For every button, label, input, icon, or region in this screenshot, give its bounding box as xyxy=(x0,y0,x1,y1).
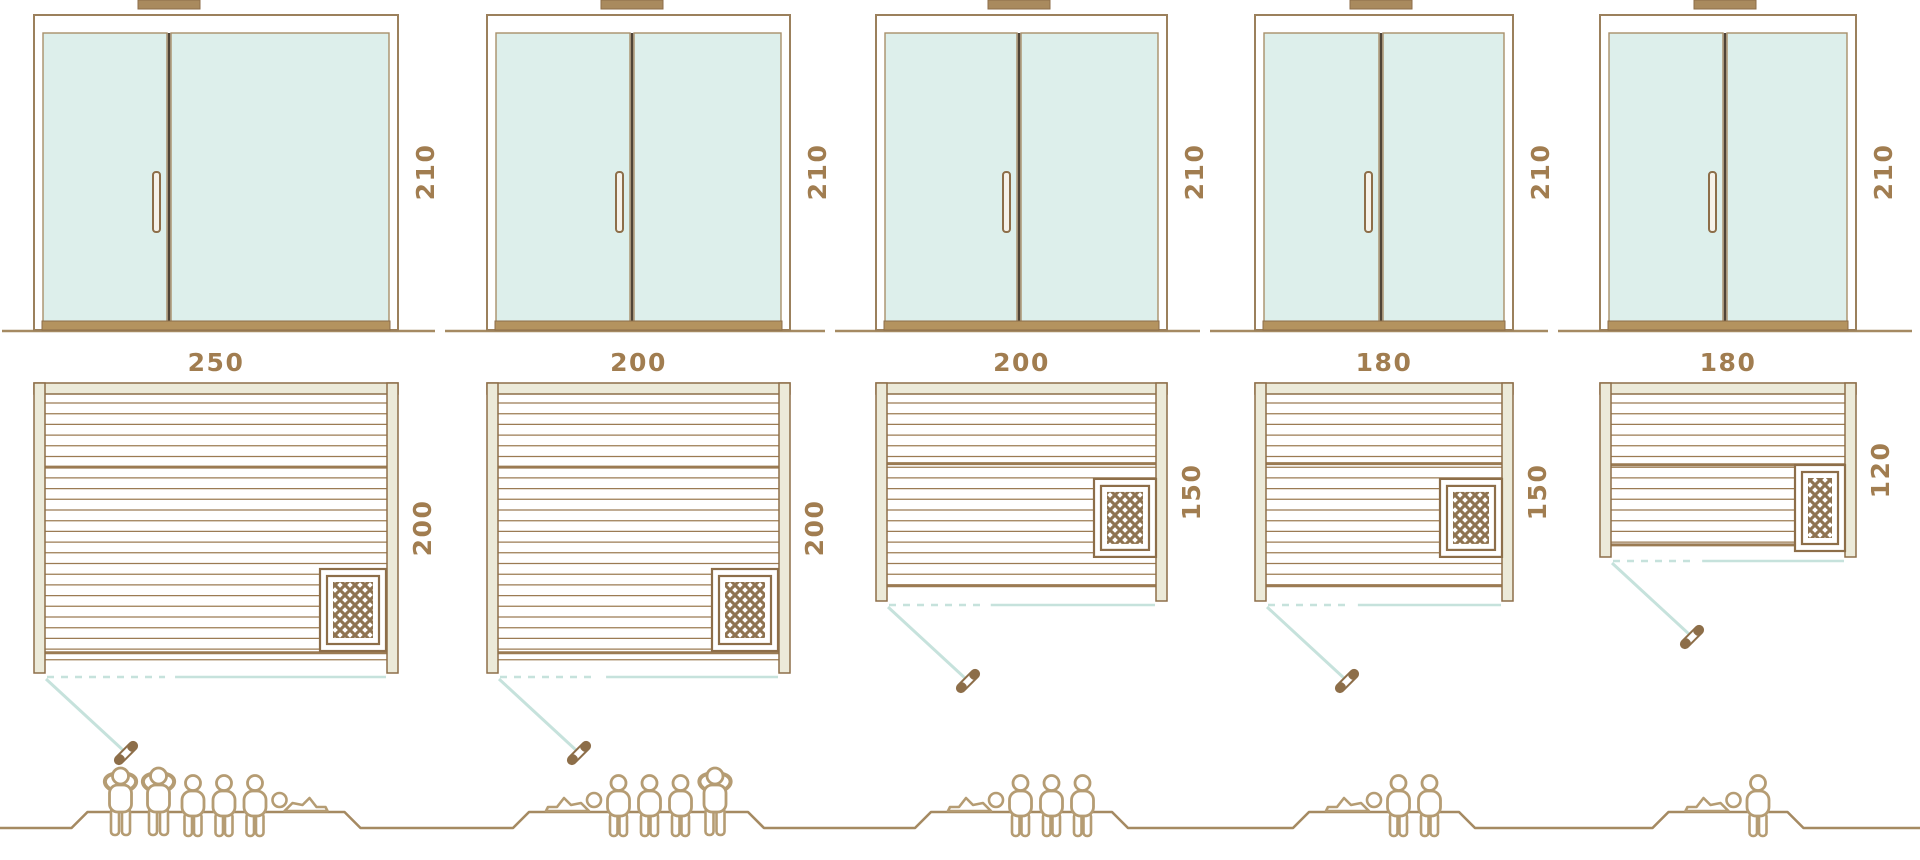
floor-plan: 180120 xyxy=(1600,348,1895,650)
plan-top-wall xyxy=(876,383,1167,394)
plan-right-post xyxy=(1845,383,1856,557)
glass-fixed-panel xyxy=(1021,33,1158,322)
heater-icon xyxy=(1795,465,1845,551)
sauna-column-3: 210200150 xyxy=(835,0,1209,836)
glass-fixed-panel xyxy=(1727,33,1847,322)
capacity-group xyxy=(105,768,328,836)
glass-door-leaf xyxy=(43,33,167,322)
sauna-column-5: 210180120 xyxy=(1558,0,1912,836)
plan-right-post xyxy=(1502,383,1513,601)
plan-top-wall xyxy=(487,383,790,394)
width-dimension-label: 200 xyxy=(993,348,1050,377)
roof-vent xyxy=(1694,0,1756,9)
door-sill xyxy=(42,321,390,330)
depth-dimension-label: 200 xyxy=(800,500,829,557)
person-sitting-icon xyxy=(213,776,235,837)
capacity-group xyxy=(948,776,1094,837)
floor-plan: 250200 xyxy=(34,348,437,766)
glass-fixed-panel xyxy=(1383,33,1504,322)
sauna-diagram: 2102502002102002002102001502101801502101… xyxy=(0,0,1920,856)
person-sitting-icon xyxy=(670,776,692,837)
plan-left-post xyxy=(876,383,887,601)
person-lying-icon xyxy=(273,793,328,811)
person-lying-icon xyxy=(546,793,601,811)
plan-top-wall xyxy=(1600,383,1856,394)
floor-plan: 200200 xyxy=(487,348,829,766)
glass-door-leaf xyxy=(1609,33,1723,322)
person-standing-icon xyxy=(143,768,174,835)
glass-door-leaf xyxy=(496,33,630,322)
width-dimension-label: 180 xyxy=(1356,348,1413,377)
door-elevation: 210 xyxy=(1210,0,1555,331)
person-sitting-icon xyxy=(1010,776,1032,837)
height-dimension-label: 210 xyxy=(1180,144,1209,201)
floor-plan: 180150 xyxy=(1255,348,1552,694)
diagram-svg-host: 2102502002102002002102001502101801502101… xyxy=(0,0,1920,860)
heater-icon xyxy=(1440,479,1502,557)
person-sitting-icon xyxy=(1419,776,1441,837)
door-handle xyxy=(616,172,623,232)
sauna-column-2: 210200200 xyxy=(445,0,832,836)
person-sitting-icon xyxy=(1072,776,1094,837)
capacity-group xyxy=(1326,776,1441,837)
plan-left-post xyxy=(1255,383,1266,601)
person-sitting-icon xyxy=(1388,776,1410,837)
roof-vent xyxy=(138,0,200,9)
door-swing-line xyxy=(888,607,966,679)
sauna-column-1: 210250200 xyxy=(2,0,440,836)
person-sitting-icon xyxy=(639,776,661,837)
heater-icon xyxy=(712,569,778,651)
door-elevation: 210 xyxy=(835,0,1209,331)
person-sitting-icon xyxy=(1041,776,1063,837)
capacity-baseline xyxy=(0,812,1920,828)
plan-left-post xyxy=(34,383,45,673)
glass-fixed-panel xyxy=(171,33,389,322)
door-elevation: 210 xyxy=(2,0,440,331)
capacity-group xyxy=(546,768,731,836)
door-sill xyxy=(495,321,782,330)
person-sitting-icon xyxy=(182,776,204,837)
height-dimension-label: 210 xyxy=(803,144,832,201)
depth-dimension-label: 150 xyxy=(1177,464,1206,521)
plan-right-post xyxy=(1156,383,1167,601)
depth-dimension-label: 150 xyxy=(1523,464,1552,521)
plan-right-post xyxy=(779,383,790,673)
glass-door-leaf xyxy=(885,33,1017,322)
glass-fixed-panel xyxy=(634,33,781,322)
floor-plan: 200150 xyxy=(876,348,1206,694)
heater-icon xyxy=(1094,479,1156,557)
door-swing-line xyxy=(1267,607,1345,679)
door-handle xyxy=(153,172,160,232)
person-sitting-icon xyxy=(1747,776,1769,837)
roof-vent xyxy=(601,0,663,9)
door-swing-line xyxy=(46,679,124,751)
roof-vent xyxy=(1350,0,1412,9)
depth-dimension-label: 200 xyxy=(408,500,437,557)
person-lying-icon xyxy=(1326,793,1381,811)
glass-door-leaf xyxy=(1264,33,1379,322)
door-elevation: 210 xyxy=(1558,0,1912,331)
door-handle xyxy=(1365,172,1372,232)
width-dimension-label: 250 xyxy=(188,348,245,377)
door-sill xyxy=(1608,321,1848,330)
width-dimension-label: 200 xyxy=(610,348,667,377)
width-dimension-label: 180 xyxy=(1700,348,1757,377)
plan-left-post xyxy=(1600,383,1611,557)
person-standing-icon xyxy=(105,768,136,835)
door-handle xyxy=(1003,172,1010,232)
plan-top-wall xyxy=(34,383,398,394)
person-standing-icon xyxy=(699,768,730,835)
person-sitting-icon xyxy=(608,776,630,837)
person-lying-icon xyxy=(948,793,1003,811)
door-handle xyxy=(1709,172,1716,232)
door-sill xyxy=(1263,321,1505,330)
height-dimension-label: 210 xyxy=(411,144,440,201)
plan-top-wall xyxy=(1255,383,1513,394)
sauna-comparison-diagram: 2102502002102002002102001502101801502101… xyxy=(0,0,1920,856)
sauna-column-4: 210180150 xyxy=(1210,0,1555,836)
roof-vent xyxy=(988,0,1050,9)
height-dimension-label: 210 xyxy=(1526,144,1555,201)
door-sill xyxy=(884,321,1159,330)
door-swing-line xyxy=(1612,563,1690,635)
person-sitting-icon xyxy=(244,776,266,837)
heater-icon xyxy=(320,569,386,651)
door-elevation: 210 xyxy=(445,0,832,331)
height-dimension-label: 210 xyxy=(1869,144,1898,201)
door-swing-line xyxy=(499,679,577,751)
plan-right-post xyxy=(387,383,398,673)
capacity-group xyxy=(1686,776,1770,837)
person-lying-icon xyxy=(1686,793,1741,811)
depth-dimension-label: 120 xyxy=(1866,442,1895,499)
plan-left-post xyxy=(487,383,498,673)
